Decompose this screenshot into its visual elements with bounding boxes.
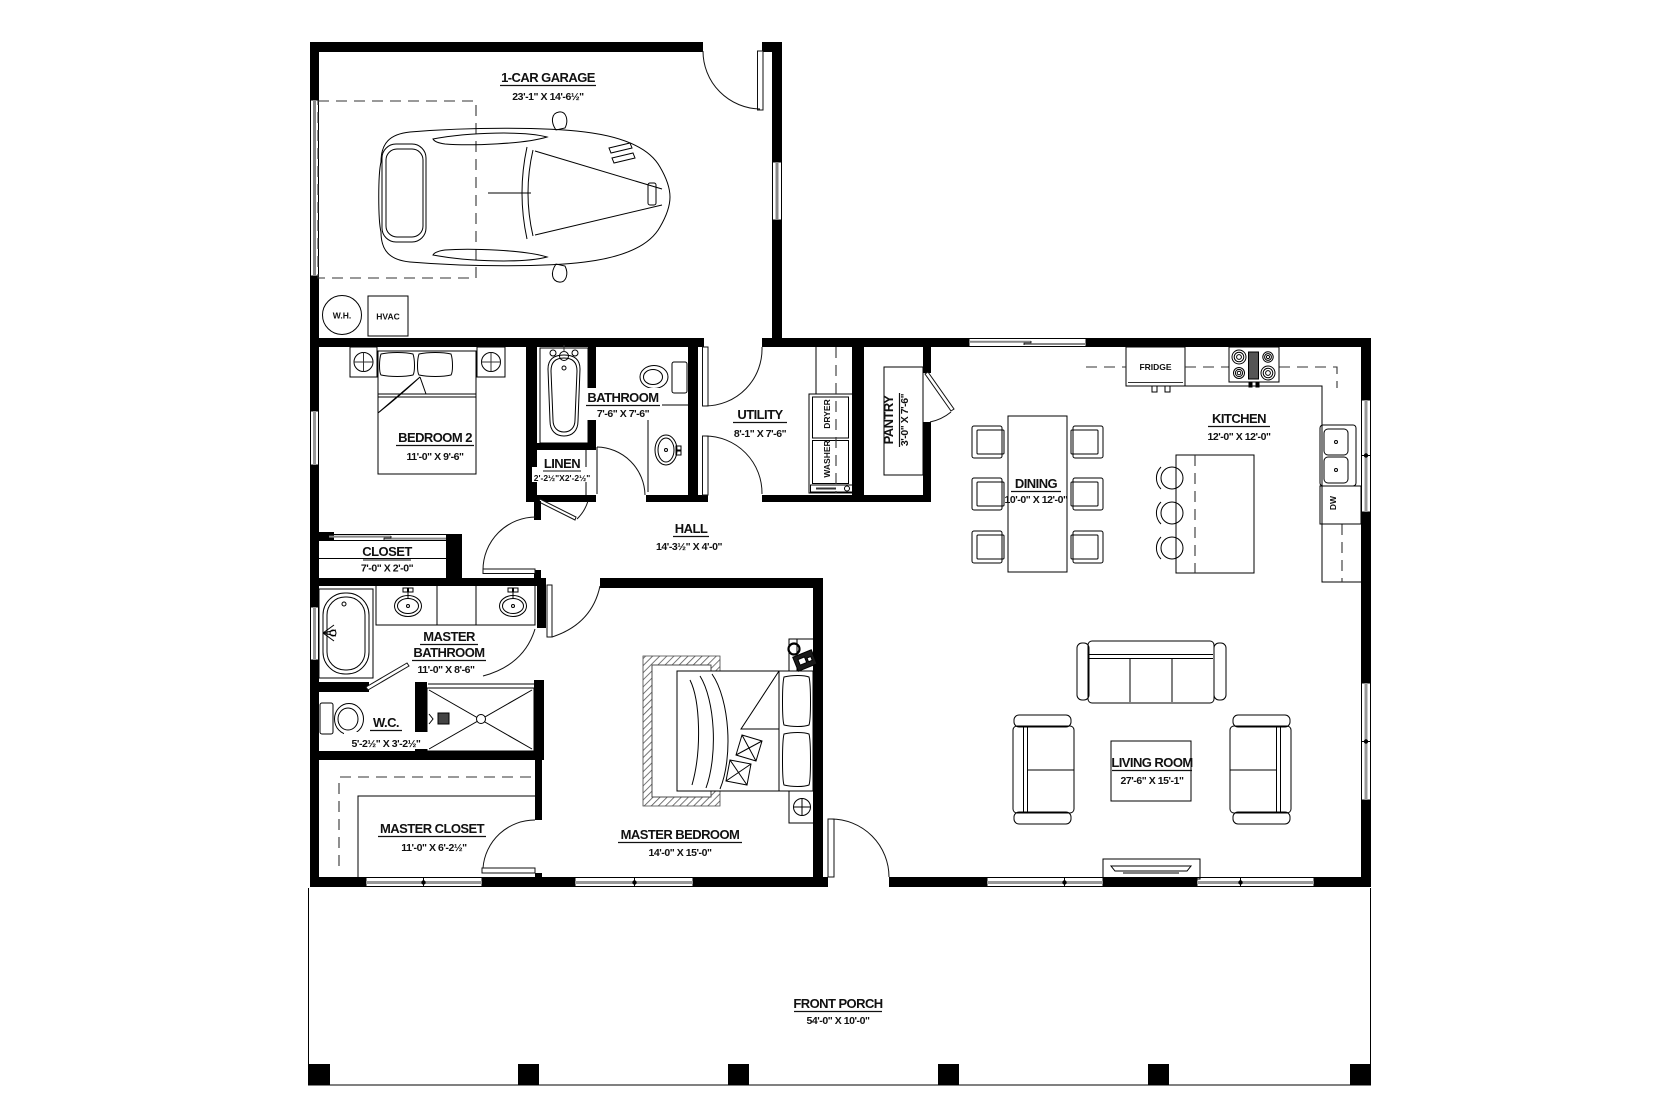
svg-text:BATHROOM: BATHROOM <box>587 390 658 405</box>
svg-text:11'-0" X 6'-2½": 11'-0" X 6'-2½" <box>401 842 467 854</box>
svg-text:DINING: DINING <box>1015 476 1058 491</box>
svg-text:5'-2½" X 3'-2½": 5'-2½" X 3'-2½" <box>352 738 421 750</box>
svg-text:FRIDGE: FRIDGE <box>1139 362 1171 372</box>
svg-text:BATHROOM: BATHROOM <box>413 645 484 660</box>
svg-text:HVAC: HVAC <box>376 312 399 322</box>
svg-text:10'-0" X 12'-0": 10'-0" X 12'-0" <box>1004 494 1068 506</box>
svg-text:LIVING ROOM: LIVING ROOM <box>1111 755 1192 770</box>
svg-text:11'-0" X 9'-6": 11'-0" X 9'-6" <box>406 451 464 463</box>
svg-text:7'-0" X 2'-0": 7'-0" X 2'-0" <box>361 563 414 575</box>
svg-text:27'-6" X 15'-1": 27'-6" X 15'-1" <box>1120 775 1184 787</box>
svg-text:11'-0" X 8'-6": 11'-0" X 8'-6" <box>417 664 475 676</box>
svg-text:23'-1" X 14'-6½": 23'-1" X 14'-6½" <box>512 91 584 103</box>
svg-text:MASTER: MASTER <box>423 629 476 644</box>
svg-text:HALL: HALL <box>675 521 708 536</box>
svg-text:BEDROOM 2: BEDROOM 2 <box>398 430 472 445</box>
svg-text:W.C.: W.C. <box>373 715 399 730</box>
svg-text:MASTER CLOSET: MASTER CLOSET <box>380 821 485 836</box>
svg-text:WASHER: WASHER <box>822 440 832 477</box>
svg-text:LINEN: LINEN <box>544 456 580 471</box>
svg-text:12'-0" X 12'-0": 12'-0" X 12'-0" <box>1207 431 1271 443</box>
svg-text:14'-0" X 15'-0": 14'-0" X 15'-0" <box>648 847 712 859</box>
svg-text:CLOSET: CLOSET <box>362 544 412 559</box>
svg-text:DRYER: DRYER <box>822 399 832 428</box>
svg-text:14'-3½" X 4'-0": 14'-3½" X 4'-0" <box>656 541 722 553</box>
svg-text:7'-6" X 7'-6": 7'-6" X 7'-6" <box>597 408 650 420</box>
svg-text:8'-1" X 7'-6": 8'-1" X 7'-6" <box>734 428 787 440</box>
svg-text:MASTER BEDROOM: MASTER BEDROOM <box>621 827 740 842</box>
svg-text:UTILITY: UTILITY <box>737 407 783 422</box>
svg-text:PANTRY: PANTRY <box>881 395 896 445</box>
svg-text:1-CAR GARAGE: 1-CAR GARAGE <box>501 70 596 85</box>
svg-text:FRONT PORCH: FRONT PORCH <box>793 996 882 1011</box>
svg-text:3'-0" X 7'-6": 3'-0" X 7'-6" <box>899 393 911 446</box>
svg-text:DW: DW <box>1328 495 1338 510</box>
svg-text:KITCHEN: KITCHEN <box>1212 411 1266 426</box>
svg-text:54'-0" X 10'-0": 54'-0" X 10'-0" <box>806 1015 870 1027</box>
svg-text:2'-2½"X2'-2½": 2'-2½"X2'-2½" <box>534 473 591 483</box>
svg-text:W.H.: W.H. <box>333 311 351 321</box>
